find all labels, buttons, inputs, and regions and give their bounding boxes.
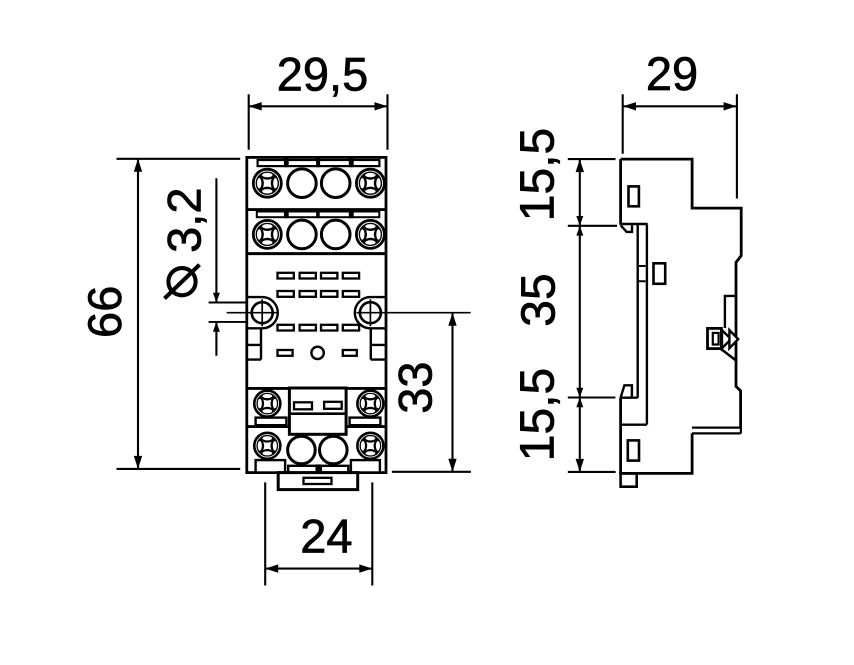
svg-text:33: 33: [389, 361, 442, 413]
svg-text:35: 35: [512, 273, 565, 326]
svg-text:24: 24: [300, 510, 352, 563]
svg-text:29: 29: [646, 47, 698, 100]
svg-text:15,5: 15,5: [512, 368, 565, 461]
svg-text:3,2: 3,2: [157, 188, 210, 253]
svg-text:66: 66: [78, 286, 131, 338]
svg-text:29,5: 29,5: [277, 48, 368, 101]
svg-text:15,5: 15,5: [512, 128, 565, 221]
